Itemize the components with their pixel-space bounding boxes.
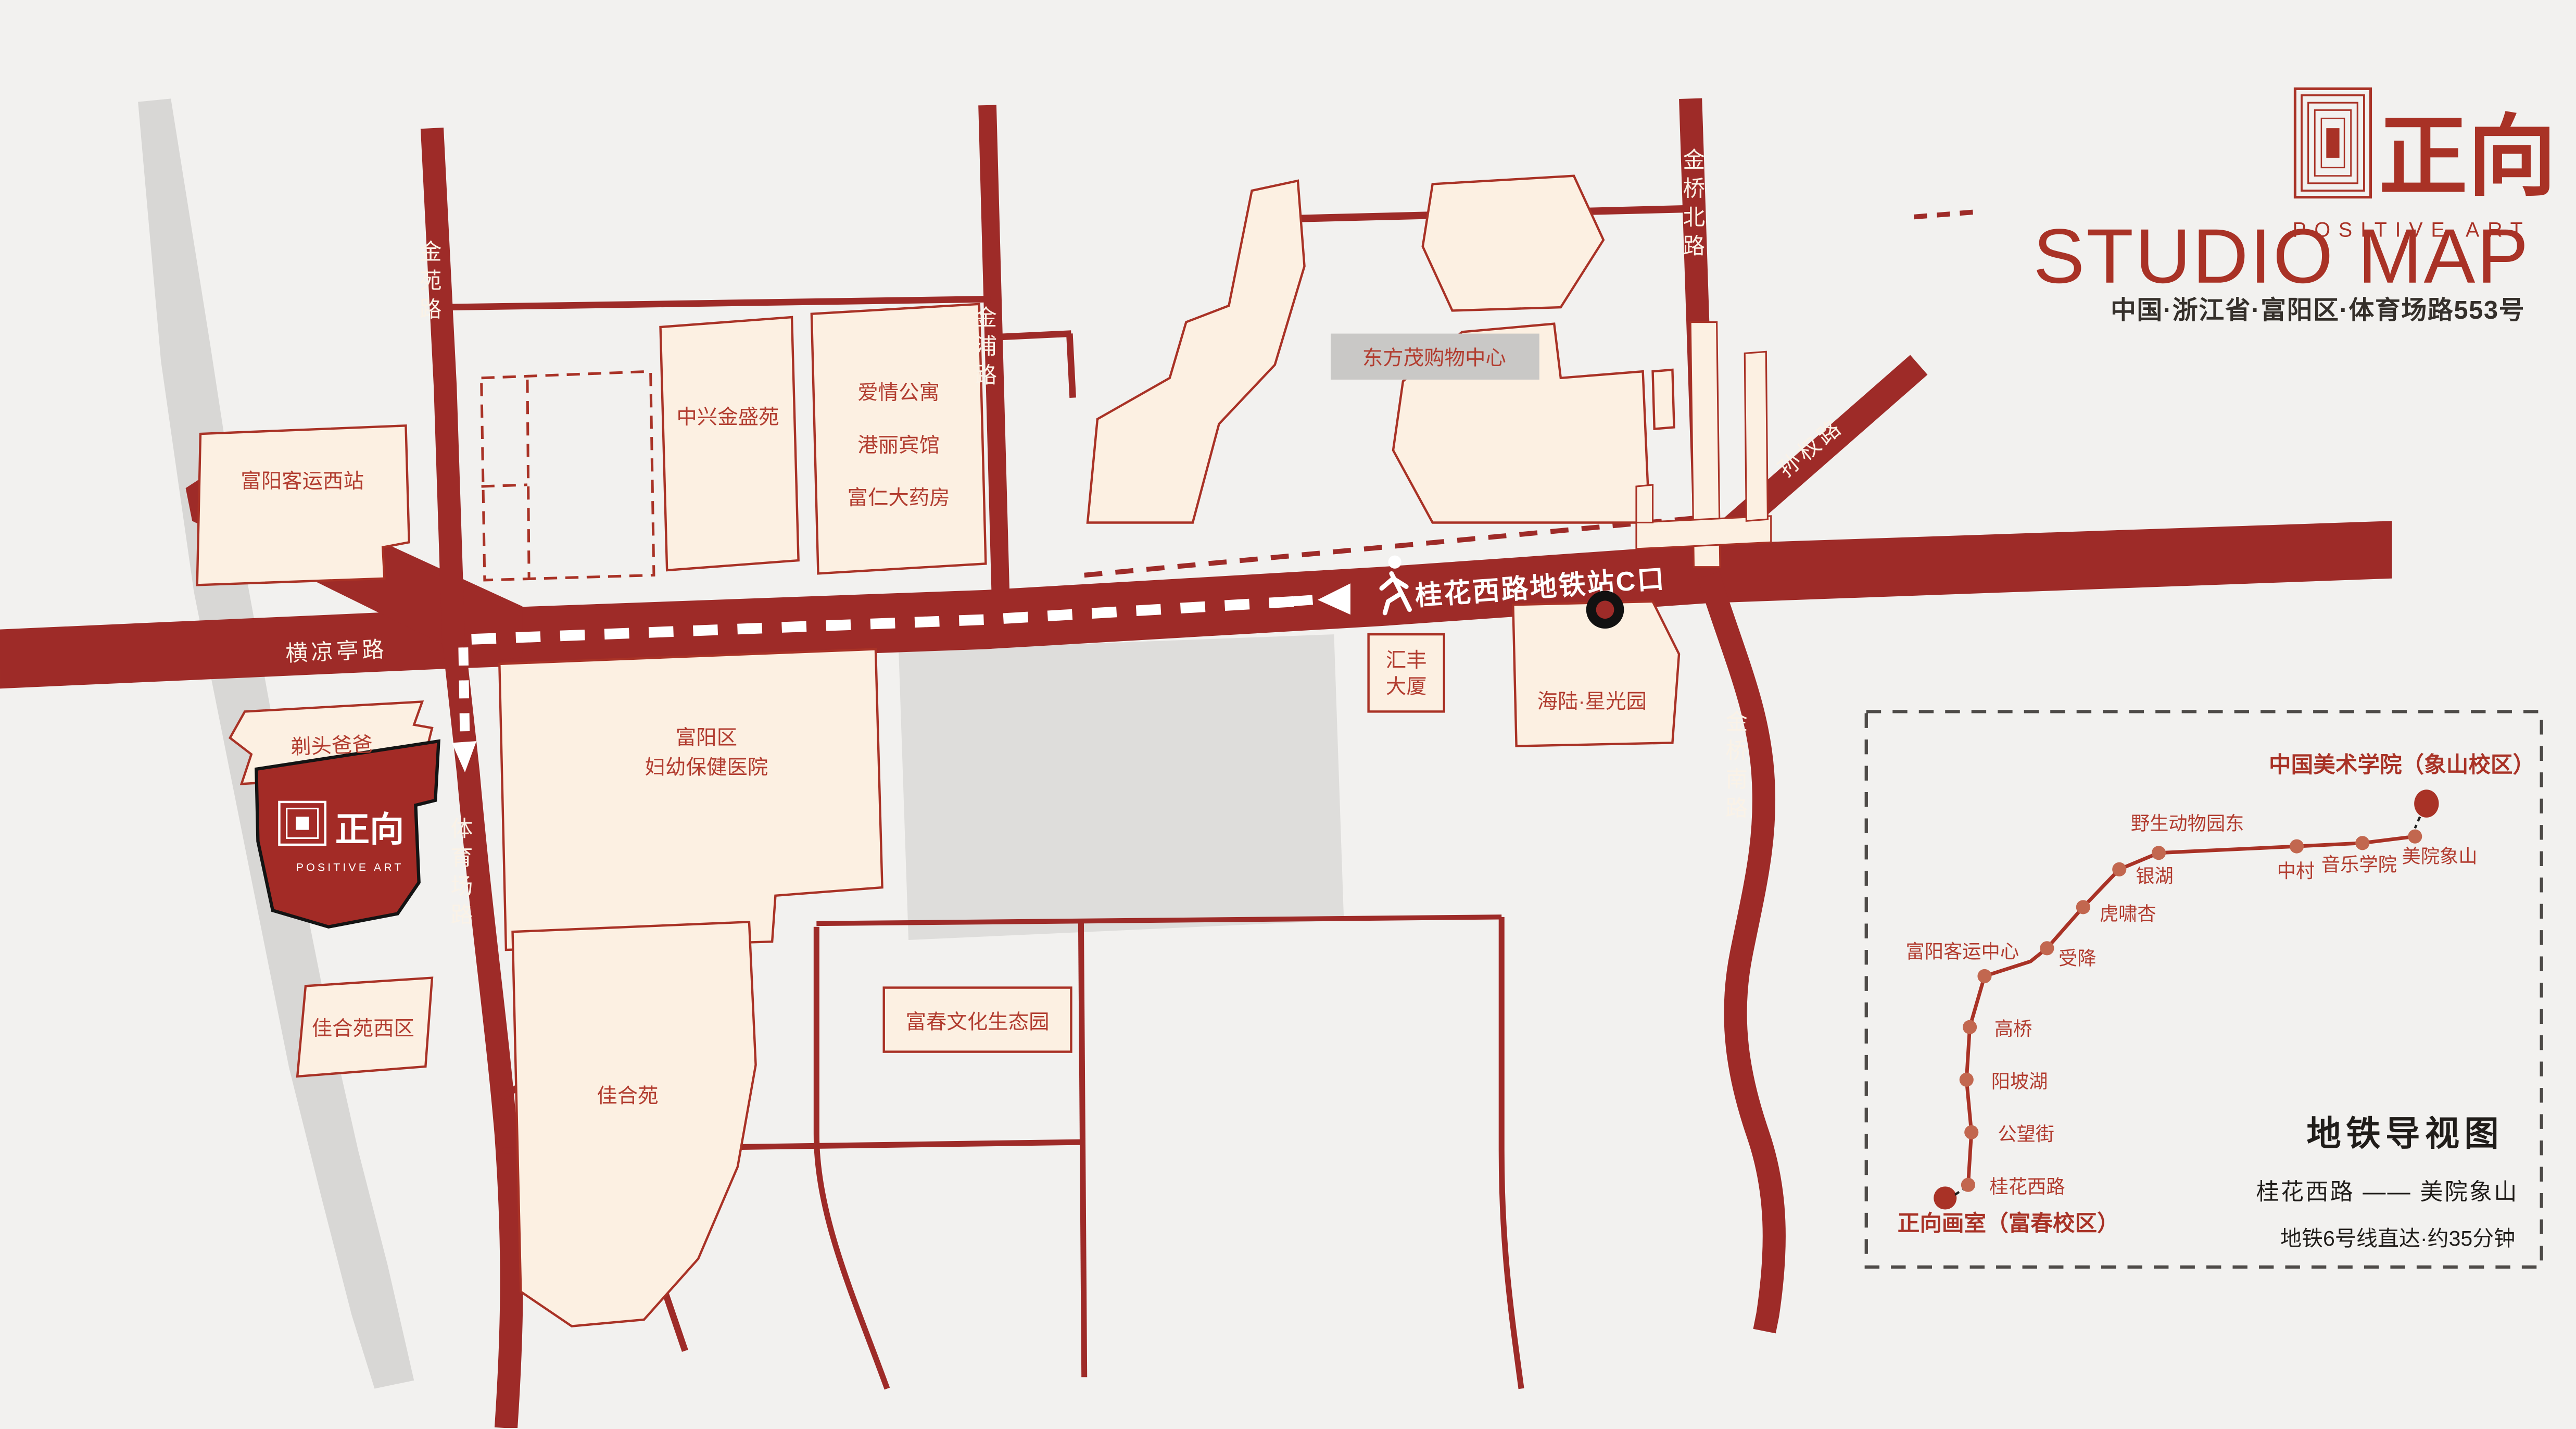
station-dot	[2076, 900, 2090, 914]
label-road-hengliangting: 横凉亭路	[285, 637, 388, 666]
label-road-jinqiao-north: 金桥北路	[1680, 148, 1704, 263]
label-barber: 剃头爸爸	[290, 733, 373, 759]
label-road-jinpu: 金浦路	[971, 306, 996, 392]
station-label-yangpohu: 阳坡湖	[1991, 1071, 2048, 1092]
building-dashed-lot	[482, 371, 654, 580]
station-label-guihuaxilu: 桂花西路	[1989, 1176, 2065, 1197]
metro-panel: 桂花西路 公望街 阳坡湖 高桥 富阳客运中心 受降 虎啸杏 银湖 野生动物园东 …	[1866, 711, 2542, 1267]
label-road-jinyuan: 金苑路	[416, 240, 441, 327]
road-jinyuan-tiyuchang	[432, 128, 512, 1428]
road-grid-v3	[1501, 917, 1521, 1389]
station-label-meiyuanxiangshan: 美院象山	[2402, 846, 2477, 867]
building-mall-north	[1423, 176, 1603, 311]
building-mall-west	[1088, 181, 1305, 522]
road-jinqiao-south	[1709, 575, 1774, 1331]
page-title: STUDIO MAP	[2033, 214, 2530, 299]
station-dot	[2040, 941, 2054, 955]
metro-entrance-marker-core	[1596, 600, 1614, 619]
road-grid-v2	[1081, 920, 1084, 1377]
station-dot	[1963, 1020, 1977, 1034]
metro-line-summary: 桂花西路 —— 美院象山	[2256, 1180, 2519, 1205]
terminal-academy-dot	[2414, 789, 2439, 818]
terminal-studio-label: 正向画室（富春校区）	[1898, 1211, 2119, 1236]
building-hospital	[499, 649, 882, 949]
label-huifeng-2: 大厦	[1386, 675, 1427, 698]
terminal-studio-dot	[1934, 1186, 1956, 1209]
station-label-gongwangjie: 公望街	[1998, 1123, 2054, 1145]
label-mall: 东方茂购物中心	[1362, 347, 1506, 370]
label-pharmacy: 富仁大药房	[848, 486, 950, 509]
building-mall-small	[1653, 370, 1674, 429]
label-huifeng-1: 汇丰	[1386, 649, 1427, 672]
plaza-block	[899, 634, 1344, 940]
label-hailu: 海陆·星光园	[1537, 690, 1647, 713]
label-hotel: 港丽宾馆	[857, 434, 940, 457]
station-dot	[2290, 839, 2304, 854]
station-label-zhongcun: 中村	[2277, 860, 2315, 882]
station-dot	[2355, 836, 2369, 850]
station-label-shouxiang: 受降	[2059, 947, 2097, 969]
station-dot	[2408, 830, 2422, 844]
building-huifeng	[1369, 634, 1444, 711]
label-road-tiyuchang: 体育场路	[448, 817, 473, 932]
building-jiaheyuan	[513, 922, 756, 1326]
label-eco-park: 富春文化生态园	[906, 1010, 1050, 1033]
label-jiaheyuan: 佳合苑	[597, 1084, 658, 1107]
studio-name-cn: 正向	[335, 811, 405, 849]
label-hospital-2: 妇幼保健医院	[645, 756, 768, 779]
route-arrow-dash	[1291, 600, 1312, 601]
label-apartment: 爱情公寓	[857, 381, 940, 404]
station-dot	[1964, 1125, 1978, 1139]
road-grid-v1	[816, 927, 887, 1389]
label-hospital-1: 富阳区	[676, 726, 737, 749]
station-label-yeshengdongwuyuan: 野生动物园东	[2131, 813, 2244, 834]
label-road-jinqiao-south: 金桥南路	[1722, 710, 1747, 825]
label-west-station: 富阳客运西站	[241, 470, 364, 493]
station-dot	[1977, 969, 1991, 983]
studio-name-en: POSITIVE ART	[296, 861, 404, 873]
studio-address: 中国·浙江省·富阳区·体育场路553号	[2111, 296, 2525, 324]
station-dot	[1960, 1073, 1974, 1087]
brand-logo-icon	[2295, 89, 2370, 197]
station-label-yinyuexueyuan: 音乐学院	[2321, 854, 2397, 875]
terminal-academy-label: 中国美术学院（象山校区）	[2269, 753, 2535, 778]
station-label-keyunzhongxin: 富阳客运中心	[1906, 941, 2019, 962]
header: 正向 POSITIVE ART STUDIO MAP 中国·浙江省·富阳区·体育…	[2033, 89, 2556, 324]
building-zhongxing	[661, 317, 799, 570]
station-dot	[2112, 862, 2126, 876]
brand-name-cn: 正向	[2379, 108, 2556, 207]
metro-note: 地铁6号线直达·约35分钟	[2280, 1226, 2515, 1250]
road-jinpu-stub	[1001, 334, 1073, 398]
route-dash-vertical	[463, 647, 465, 739]
metro-panel-title: 地铁导视图	[2307, 1114, 2504, 1153]
studio-block: 正向 POSITIVE ART	[256, 741, 438, 927]
station-dot	[2152, 846, 2166, 860]
station-label-gaoqiao: 高桥	[1994, 1018, 2032, 1039]
label-zhongxing: 中兴金盛苑	[676, 406, 779, 429]
jinqiao-overpass	[1636, 322, 1771, 567]
studio-map-canvas: 正向 POSITIVE ART 桂花西路地铁站C口 金苑路 金浦路 金桥北路 孙…	[0, 0, 2576, 1428]
road-dashed-stub	[1914, 212, 1975, 217]
studio-logo-icon	[279, 802, 325, 845]
label-jiaheyuan-west: 佳合苑西区	[312, 1017, 414, 1040]
station-label-huxiaoxing: 虎啸杏	[2100, 903, 2156, 924]
building-west-station	[197, 425, 409, 585]
road-top-connector	[440, 299, 991, 307]
terminal-academy-connector	[2415, 817, 2420, 828]
station-dot	[1961, 1178, 1975, 1192]
station-label-yinhu: 银湖	[2136, 866, 2174, 887]
